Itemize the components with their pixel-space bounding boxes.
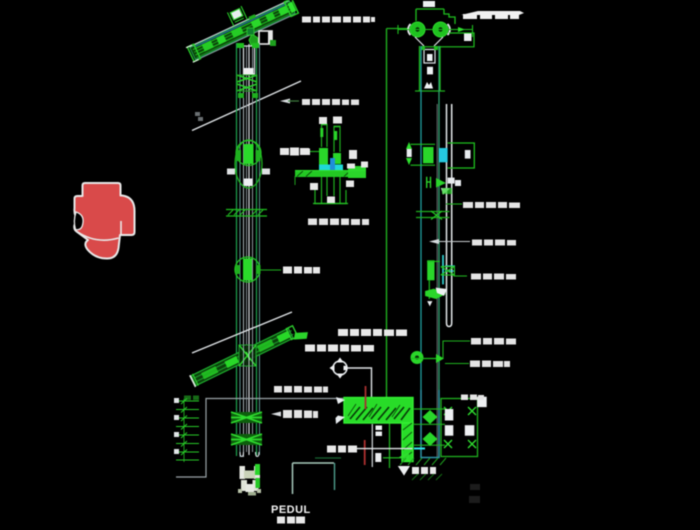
svg-text:PEDUL: PEDUL <box>271 504 311 516</box>
